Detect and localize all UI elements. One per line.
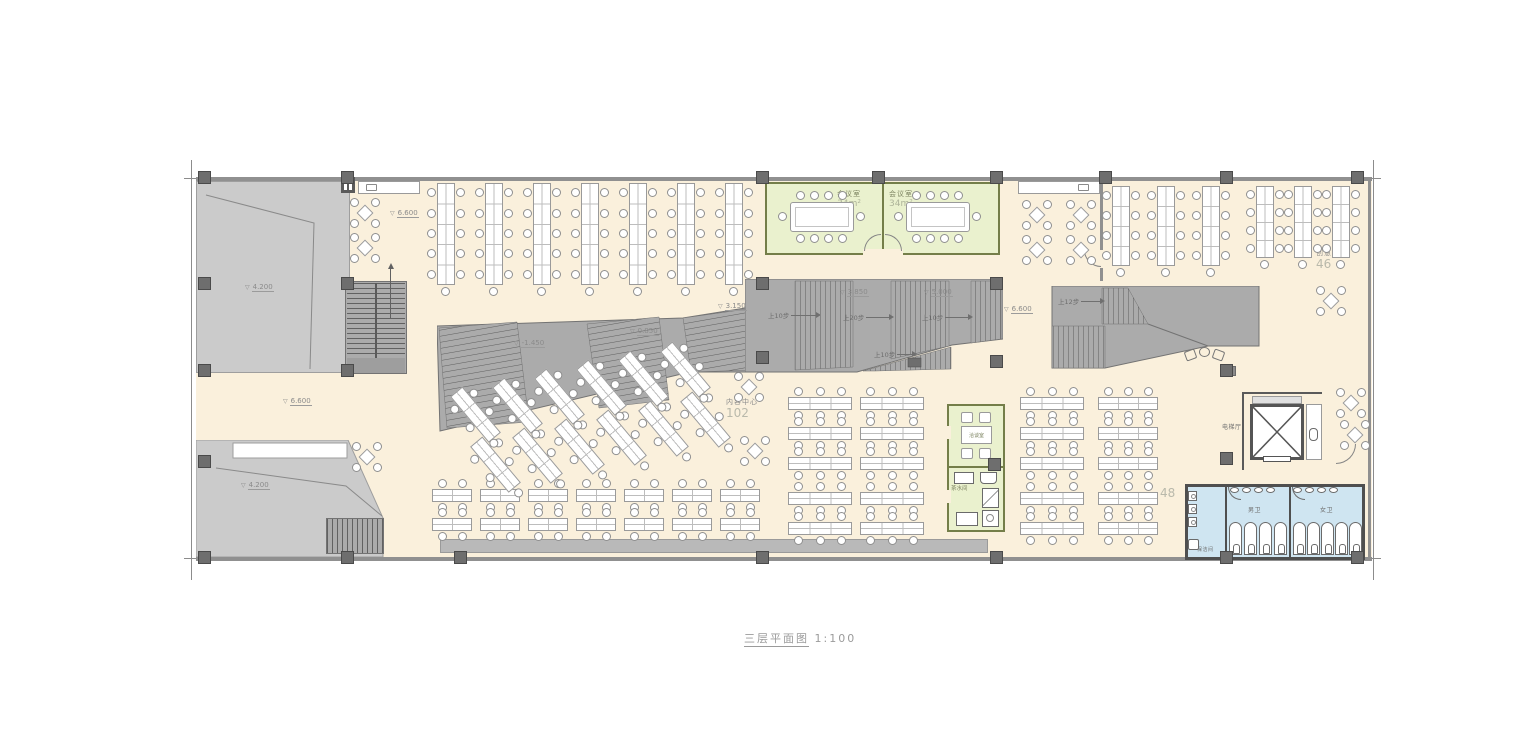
chair [1022, 256, 1031, 265]
structural-column [1351, 171, 1364, 184]
sink [1305, 487, 1314, 493]
chair [1144, 471, 1153, 480]
dept-label-content: 内容中心102 [726, 399, 758, 420]
chair [1069, 417, 1078, 426]
c [1191, 520, 1196, 525]
chair [1147, 211, 1156, 220]
chair [352, 463, 361, 472]
toilet-stall [1335, 522, 1348, 555]
desk-bench [788, 457, 852, 470]
chair [633, 287, 642, 296]
chair [1161, 268, 1170, 277]
chair [1361, 420, 1370, 429]
bench-strip [440, 539, 988, 553]
structural-column [1220, 364, 1233, 377]
chair [1048, 482, 1057, 491]
door-gap [946, 426, 951, 439]
desk-bench [788, 522, 852, 535]
chair [350, 219, 359, 228]
chair [1087, 200, 1096, 209]
chair [940, 191, 949, 200]
chair [1351, 226, 1360, 235]
chair [1221, 231, 1230, 240]
chair [534, 532, 543, 541]
chair [816, 512, 825, 521]
chair [1124, 482, 1133, 491]
desk-bench [576, 489, 616, 502]
pantry-room-label: 茶水间 [951, 484, 968, 492]
door-gap [946, 490, 951, 503]
desk-row [725, 183, 743, 285]
elevation-marker: ▽4.200 [245, 284, 274, 292]
chair [1221, 191, 1230, 200]
chair [1322, 226, 1331, 235]
toilet-fixture [1309, 428, 1318, 441]
chair [1284, 244, 1293, 253]
chair [585, 287, 594, 296]
urinal-fixture [1188, 491, 1197, 501]
chair [582, 508, 591, 517]
chair [729, 287, 738, 296]
negotiation-table: 洽谈室 [961, 426, 992, 444]
elevation-marker: ▽6.600 [390, 210, 419, 218]
floor-plan-canvas: 会议室 34m² 会议室 34m² 洽谈室 茶水间 电梯厅 [0, 0, 1537, 733]
structural-column [454, 551, 467, 564]
printer-icon [366, 184, 377, 191]
chair [1048, 447, 1057, 456]
chair [1284, 226, 1293, 235]
chair [926, 234, 935, 243]
chair [438, 508, 447, 517]
chair [1102, 191, 1111, 200]
chair [648, 270, 657, 279]
chair [1048, 387, 1057, 396]
chair [427, 229, 436, 238]
chair [837, 417, 846, 426]
desk-bench [788, 427, 852, 440]
chair [744, 229, 753, 238]
chair [371, 233, 380, 242]
toilet [1263, 544, 1270, 554]
chair [696, 270, 705, 279]
chair [678, 479, 687, 488]
chair [734, 372, 743, 381]
chair [1322, 208, 1331, 217]
chair [1192, 231, 1201, 240]
desk-bench [576, 518, 616, 531]
structural-column [988, 458, 1001, 471]
chair [909, 482, 918, 491]
chair [1313, 226, 1322, 235]
chair [1104, 512, 1113, 521]
desk-row [1294, 186, 1312, 258]
mop-sink [1188, 539, 1199, 550]
chair [816, 471, 825, 480]
printer-icon [1078, 184, 1089, 191]
chair [972, 212, 981, 221]
chair [1087, 235, 1096, 244]
chair [816, 536, 825, 545]
structural-column [756, 551, 769, 564]
chair [648, 209, 657, 218]
janitor-label: 保洁间 [1197, 546, 1214, 553]
chair [1104, 536, 1113, 545]
chair [373, 463, 382, 472]
chair [438, 479, 447, 488]
sink [1329, 487, 1338, 493]
chair [888, 512, 897, 521]
chair [486, 532, 495, 541]
desk-bench [1098, 457, 1158, 470]
chair [602, 532, 611, 541]
chair [912, 234, 921, 243]
chair [1147, 191, 1156, 200]
chair [554, 532, 563, 541]
elevator-hatch [1252, 396, 1302, 404]
chair [350, 233, 359, 242]
chair [1147, 251, 1156, 260]
desk-bench [432, 518, 472, 531]
chair [1131, 211, 1140, 220]
chair [816, 482, 825, 491]
chair [1144, 536, 1153, 545]
chair [504, 270, 513, 279]
chair [1351, 208, 1360, 217]
chair [837, 512, 846, 521]
toilet-stall [1274, 522, 1287, 555]
chair [534, 508, 543, 517]
desk-row [1157, 186, 1175, 266]
chair [888, 482, 897, 491]
chair [371, 198, 380, 207]
desk-bench [1098, 492, 1158, 505]
chair [1043, 221, 1052, 230]
door-arc [885, 234, 902, 251]
structural-column [756, 277, 769, 290]
chair [1124, 447, 1133, 456]
desk-bench [624, 489, 664, 502]
chair [456, 209, 465, 218]
chair [1284, 190, 1293, 199]
chair [726, 508, 735, 517]
chair [489, 287, 498, 296]
c [1191, 507, 1196, 512]
desk-bench [1020, 397, 1084, 410]
desk-row [533, 183, 551, 285]
chair [1048, 417, 1057, 426]
chair [909, 417, 918, 426]
chair [512, 487, 525, 500]
chair [1337, 286, 1346, 295]
structural-column [341, 364, 354, 377]
chair [1337, 307, 1346, 316]
chair [1104, 482, 1113, 491]
chair [1316, 307, 1325, 316]
chair [504, 229, 513, 238]
desk-row [1202, 186, 1220, 266]
chair [954, 191, 963, 200]
chair [1322, 244, 1331, 253]
toilet [1233, 544, 1240, 554]
chair [1313, 208, 1322, 217]
chair [909, 387, 918, 396]
chair [837, 536, 846, 545]
sink [1254, 487, 1263, 493]
structural-column [1351, 551, 1364, 564]
chair [537, 287, 546, 296]
chair [1192, 251, 1201, 260]
chair [1043, 256, 1052, 265]
chair [778, 212, 787, 221]
chair [740, 457, 749, 466]
desk-bench [1020, 427, 1084, 440]
desk-bench [1020, 492, 1084, 505]
chair [456, 229, 465, 238]
structural-column [756, 171, 769, 184]
chair [1066, 221, 1075, 230]
chair [630, 532, 639, 541]
chair [1275, 208, 1284, 217]
toilet [1325, 544, 1332, 554]
toilet-stall [1244, 522, 1257, 555]
chair [1066, 200, 1075, 209]
toilet [1297, 544, 1304, 554]
desk-bench [432, 489, 472, 502]
structural-column [990, 355, 1003, 368]
chair [1116, 268, 1125, 277]
chair [1336, 388, 1345, 397]
chair [650, 532, 659, 541]
toilet [1339, 544, 1346, 554]
desk-row [437, 183, 455, 285]
structural-column [198, 277, 211, 290]
chair [667, 229, 676, 238]
chair [506, 532, 515, 541]
elevator-shaft [1250, 404, 1304, 460]
table-inner [795, 207, 849, 227]
structural-column [872, 171, 885, 184]
chair [371, 254, 380, 263]
elevation-marker: ▽6.600 [1004, 306, 1033, 314]
desk-bench [788, 397, 852, 410]
sink [1242, 487, 1251, 493]
chair [1260, 260, 1269, 269]
elevator-x-icon [1253, 407, 1301, 457]
chair [1131, 231, 1140, 240]
chair [761, 436, 770, 445]
desk-bench [480, 518, 520, 531]
chair [1131, 251, 1140, 260]
chair [1322, 190, 1331, 199]
chair [796, 234, 805, 243]
chair [755, 372, 764, 381]
chair [1104, 471, 1113, 480]
chair [838, 191, 847, 200]
structural-column [1099, 171, 1112, 184]
chair [1087, 221, 1096, 230]
chair [427, 270, 436, 279]
sink [1293, 487, 1302, 493]
chair [1176, 211, 1185, 220]
desk-bench [860, 492, 924, 505]
desk-bench [1098, 522, 1158, 535]
chair [650, 508, 659, 517]
chair [824, 234, 833, 243]
chair [1316, 286, 1325, 295]
c [1191, 494, 1196, 499]
chair [816, 387, 825, 396]
chair [912, 191, 921, 200]
step-label: 上12步 [1058, 296, 1101, 306]
chair [837, 387, 846, 396]
lounge-chair-icon [1199, 347, 1210, 357]
chair [1069, 471, 1078, 480]
chair [698, 479, 707, 488]
toilet-stall [1307, 522, 1320, 555]
desk-bench [1020, 522, 1084, 535]
desk-bench [672, 518, 712, 531]
chair [909, 536, 918, 545]
step-label: 上10步 [768, 310, 817, 320]
chair [715, 270, 724, 279]
chair [837, 447, 846, 456]
drawing-title: 三层平面图 1:100 [744, 630, 856, 646]
chair [1275, 226, 1284, 235]
chair [940, 234, 949, 243]
chair [371, 219, 380, 228]
chair [1131, 191, 1140, 200]
chair [571, 209, 580, 218]
desk-row [677, 183, 695, 285]
chair [523, 209, 532, 218]
chair [1104, 447, 1113, 456]
bathroom-divider [1289, 487, 1291, 557]
chair [1087, 256, 1096, 265]
structural-column [341, 277, 354, 290]
chair [1192, 211, 1201, 220]
chair [350, 254, 359, 263]
chair [856, 212, 865, 221]
chair [888, 447, 897, 456]
urinal-fixture [1188, 517, 1197, 527]
chair [1043, 200, 1052, 209]
elevation-marker: ▽3.150 [718, 303, 747, 311]
structural-column [1220, 171, 1233, 184]
chair [1176, 231, 1185, 240]
chair [458, 508, 467, 517]
elevation-marker: ▽3.850 [840, 289, 869, 297]
desk-bench [528, 518, 568, 531]
chair [441, 287, 450, 296]
chair [427, 209, 436, 218]
chair [888, 417, 897, 426]
chair [600, 229, 609, 238]
chair [1284, 208, 1293, 217]
chair [648, 229, 657, 238]
desk-row [1332, 186, 1350, 258]
structural-column [198, 551, 211, 564]
chair [746, 479, 755, 488]
chair [740, 436, 749, 445]
chair [1124, 387, 1133, 396]
door-arc [864, 234, 881, 251]
chair [619, 209, 628, 218]
chair [698, 508, 707, 517]
stair-direction-arrow [390, 268, 391, 318]
chair [810, 234, 819, 243]
desk-row [629, 183, 647, 285]
desk-row [1256, 186, 1274, 258]
structural-column [198, 171, 211, 184]
sink [1317, 487, 1326, 493]
toilet-stall [1293, 522, 1306, 555]
chair [373, 442, 382, 451]
chair [744, 270, 753, 279]
chair [554, 478, 567, 491]
bathroom-divider [1225, 487, 1227, 557]
desk-bench [720, 489, 760, 502]
chair [888, 471, 897, 480]
chair [1124, 417, 1133, 426]
chair [888, 387, 897, 396]
chair [744, 209, 753, 218]
chair [1048, 471, 1057, 480]
chair [1022, 221, 1031, 230]
structural-column [990, 171, 1003, 184]
chair [1176, 251, 1185, 260]
chair [909, 447, 918, 456]
left-boundary-line [191, 160, 192, 580]
chair [1313, 190, 1322, 199]
meeting-divider-wall [882, 184, 884, 253]
table-inner [911, 207, 965, 227]
chair [1022, 200, 1031, 209]
structural-column [341, 551, 354, 564]
chair [1124, 512, 1133, 521]
chair [458, 479, 467, 488]
toilet [1278, 544, 1285, 554]
chair [1069, 512, 1078, 521]
chair [1124, 536, 1133, 545]
chair [1104, 417, 1113, 426]
chair [678, 532, 687, 541]
chair [1048, 512, 1057, 521]
chair [1069, 536, 1078, 545]
chair [680, 451, 693, 464]
chair [667, 209, 676, 218]
chair [761, 457, 770, 466]
chair [1043, 235, 1052, 244]
chair [1048, 536, 1057, 545]
chair [552, 229, 561, 238]
chair [681, 287, 690, 296]
urinal-fixture [1188, 504, 1197, 514]
chair [475, 209, 484, 218]
chair [602, 508, 611, 517]
desk-row [1112, 186, 1130, 266]
desk-row [581, 183, 599, 285]
chair [1336, 260, 1345, 269]
toilet [1311, 544, 1318, 554]
structural-column [198, 455, 211, 468]
elevator-lobby-wall [1242, 392, 1322, 394]
right-boundary-line [1373, 160, 1374, 580]
chair [596, 469, 609, 482]
chair [909, 512, 918, 521]
dept-label-zone48: 48 [1160, 487, 1175, 500]
elevation-marker: ▽0.850 [630, 328, 659, 336]
chair [698, 532, 707, 541]
